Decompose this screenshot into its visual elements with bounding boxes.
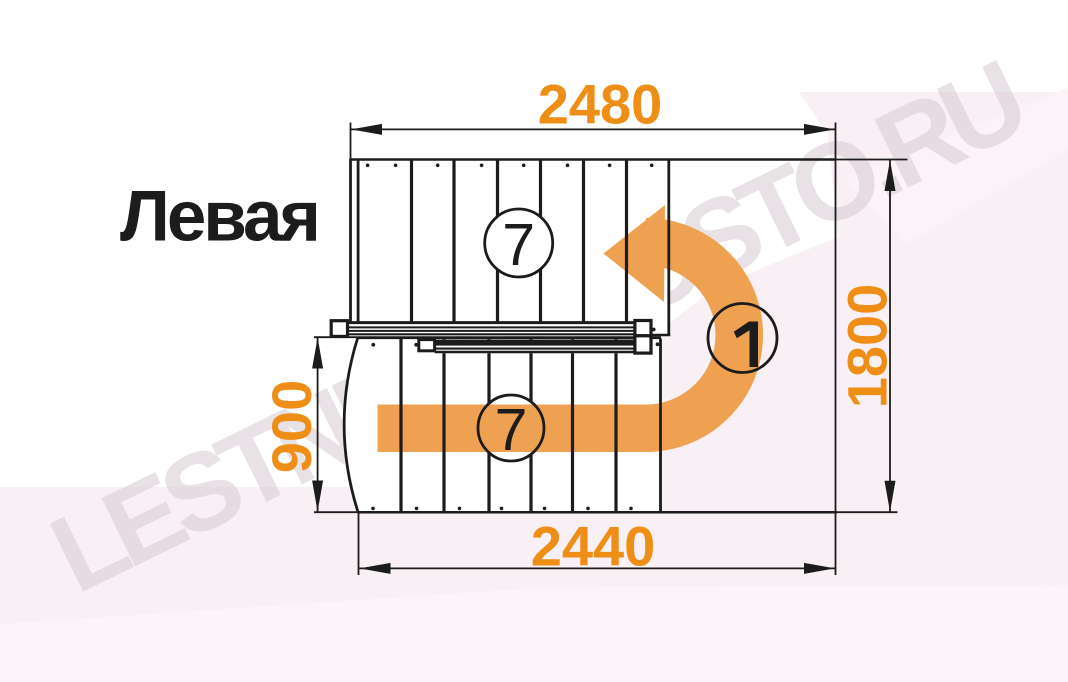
svg-text:1800: 1800 (836, 284, 899, 409)
svg-text:Левая: Левая (120, 178, 318, 257)
svg-text:900: 900 (260, 380, 323, 473)
svg-text:7: 7 (502, 212, 535, 278)
svg-text:2440: 2440 (531, 515, 656, 578)
svg-text:7: 7 (495, 397, 528, 463)
svg-text:2480: 2480 (538, 73, 663, 136)
